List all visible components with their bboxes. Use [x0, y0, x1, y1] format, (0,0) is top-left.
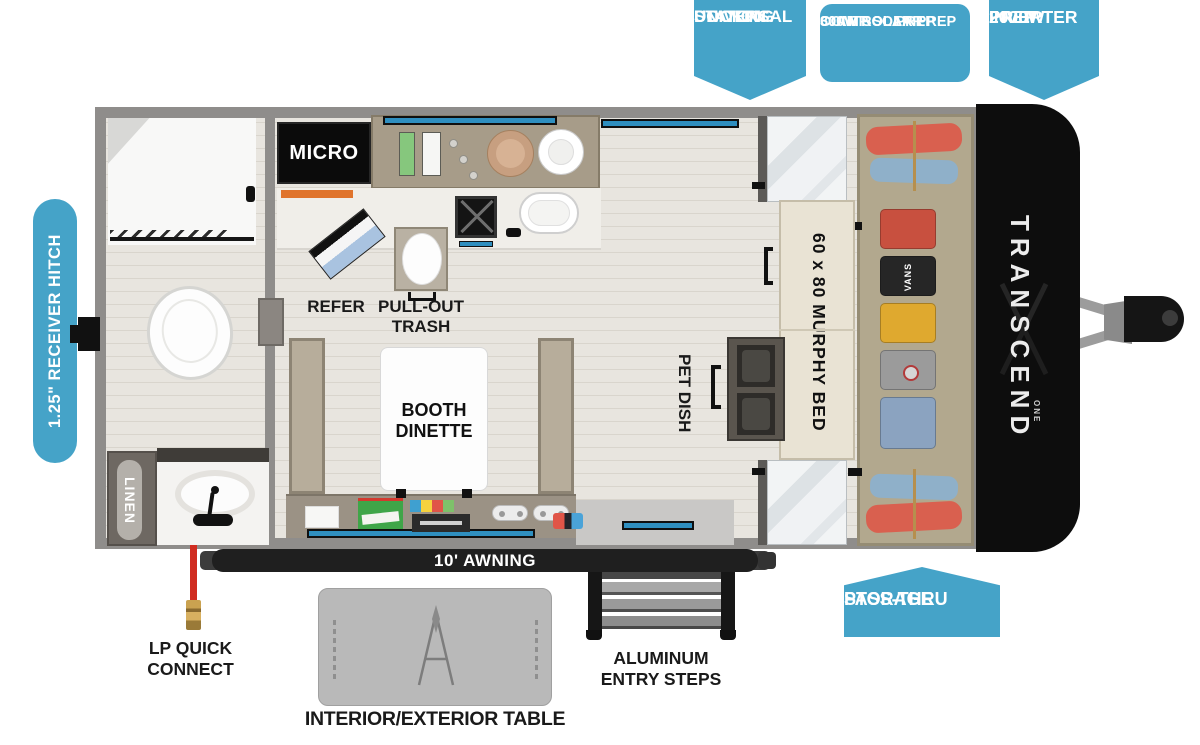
pet-dish-label: PET DISH — [672, 345, 696, 441]
table-label-text: INTERIOR/EXTERIOR TABLE — [305, 708, 565, 730]
dinette-label: DINETTE — [381, 421, 487, 442]
callout-solar-prep: 600W SOLAR PREP 30AMP SOLAR CONTROL PREP — [820, 4, 970, 82]
pull-out-trash-bin — [394, 227, 448, 291]
lp-quick-connect-fitting — [186, 600, 201, 630]
window-strip — [601, 119, 739, 128]
kitchen-sink — [519, 192, 579, 234]
kitchen-upper-counter — [371, 115, 600, 189]
cabinet-handle — [752, 182, 765, 189]
refer-label-text: REFER — [307, 297, 365, 316]
slide-bracket — [848, 468, 862, 476]
nightstand-bottom — [767, 460, 847, 545]
murphy-bed-seam — [779, 329, 855, 331]
trash-label-line: PULL-OUT — [368, 297, 474, 317]
entry-door-window — [622, 521, 694, 530]
cutting-board-white — [422, 132, 441, 176]
step-tread — [602, 616, 721, 629]
cabinet-handle — [752, 468, 765, 475]
pet-dish-bracket — [711, 365, 721, 409]
bathroom-sink — [175, 470, 255, 518]
shower-door-zigzag — [110, 230, 230, 237]
window-strip — [383, 116, 557, 125]
steps-label-line: ALUMINUM — [585, 648, 737, 669]
step-foot — [720, 630, 736, 640]
nightstand-side-panel — [758, 116, 767, 202]
folded-jeans — [880, 397, 936, 449]
receiver-hitch-nub-small — [70, 325, 80, 343]
utensil-icon — [459, 155, 468, 164]
step-foot — [586, 630, 602, 640]
stove-cooktop — [455, 196, 497, 238]
plate — [487, 130, 534, 177]
dinette-bench-left — [289, 338, 325, 494]
callout-inverter-prep: 2000W INVERTER PREP — [989, 0, 1099, 100]
kitchen-faucet-icon — [506, 228, 521, 237]
closet-rod — [913, 469, 916, 539]
playing-card — [305, 506, 339, 528]
callout-line: PREP — [989, 7, 1037, 27]
dinette-bench-right — [538, 338, 574, 494]
step-tread — [602, 582, 721, 595]
shower-stall — [108, 118, 256, 245]
dinette-label: BOOTH — [381, 400, 487, 421]
trash-label-line: TRASH — [368, 317, 474, 337]
vanity-backsplash — [157, 448, 269, 462]
microwave-label: MICRO — [289, 142, 358, 164]
lp-quick-connect-label: LP QUICK CONNECT — [128, 638, 253, 680]
bathroom-vanity — [157, 462, 269, 545]
floorplan-diagram: UNIVERSAL DOCKING STATION 600W SOLAR PRE… — [0, 0, 1200, 745]
front-cap: TRANSCEND ONE — [976, 104, 1080, 552]
step-tread — [602, 599, 721, 612]
hanging-clothes — [864, 121, 967, 193]
interior-exterior-table-label: INTERIOR/EXTERIOR TABLE — [295, 708, 575, 731]
hitch-coupler — [1124, 296, 1184, 342]
pet-bowl — [737, 393, 775, 435]
linen-cabinet: LINEN — [107, 451, 157, 546]
wall-cabinet — [258, 298, 284, 346]
callout-line: CONTROL PREP — [820, 12, 935, 32]
sofa-wardrobe: VANS — [857, 114, 974, 546]
table-leg — [396, 489, 406, 498]
table-edge-marking — [333, 617, 336, 679]
awning-motor-nub — [758, 552, 776, 569]
entry-steps-label: ALUMINUM ENTRY STEPS — [585, 648, 737, 690]
shower-door-track — [110, 237, 254, 241]
utensil-icon — [449, 139, 458, 148]
faucet-handle-icon — [193, 514, 233, 526]
shower-pan — [108, 118, 256, 245]
linen-label: LINEN — [117, 460, 142, 540]
folded-shirt-black: VANS — [880, 256, 936, 296]
game-tiles — [410, 500, 454, 512]
table-compass-logo — [406, 603, 466, 693]
lp-gas-line — [190, 545, 197, 602]
receiver-hitch-nub — [78, 317, 100, 351]
refer-label: REFER — [296, 297, 376, 317]
bowl — [538, 129, 584, 175]
accent-strip-orange — [281, 190, 353, 198]
murphy-bed-label: 60 x 80 MURPHY BED — [781, 202, 857, 462]
board-game-box-dark — [412, 514, 470, 532]
lp-label-line: LP QUICK — [128, 638, 253, 659]
brand-name-vertical: TRANSCEND — [976, 104, 1064, 552]
folded-shirt-gray — [880, 350, 936, 390]
pull-out-trash-label: PULL-OUT TRASH — [368, 297, 474, 337]
callout-universal-docking-station: UNIVERSAL DOCKING STATION — [694, 0, 806, 100]
nightstand-top — [767, 116, 847, 202]
aluminum-entry-steps — [588, 560, 735, 642]
bed-bracket — [764, 247, 773, 285]
closet-rod — [913, 121, 916, 191]
stove-control-strip — [459, 241, 493, 247]
shirt-brand-text: VANS — [888, 263, 928, 291]
pet-dish-label-text: PET DISH — [672, 345, 696, 441]
table-leg — [462, 489, 472, 498]
folded-shirt-yellow — [880, 303, 936, 343]
pet-bowl — [737, 345, 775, 387]
game-controller — [492, 505, 528, 521]
microwave: MICRO — [277, 122, 371, 184]
hanging-clothes — [864, 469, 967, 541]
cutting-board-green — [399, 132, 415, 176]
lp-label-line: CONNECT — [128, 659, 253, 680]
callout-line: STATION — [694, 7, 766, 27]
awning-label: 10' AWNING — [434, 551, 536, 570]
booth-dinette-table: BOOTH DINETTE — [380, 347, 488, 491]
awning-bar: 10' AWNING — [212, 549, 758, 572]
handheld-console — [553, 513, 583, 529]
folded-shirt-red — [880, 209, 936, 249]
brand-subname: ONE — [1032, 400, 1041, 423]
callout-pass-thru-storage: PASS-THRU STORAGE — [844, 567, 1000, 637]
interior-exterior-table — [318, 588, 552, 706]
shower-valve-icon — [246, 186, 255, 202]
steps-label-line: ENTRY STEPS — [585, 669, 737, 690]
utensil-icon — [469, 171, 478, 180]
pet-dish-unit — [727, 337, 785, 441]
callout-line: STORAGE — [844, 589, 933, 610]
table-edge-marking — [535, 617, 538, 679]
